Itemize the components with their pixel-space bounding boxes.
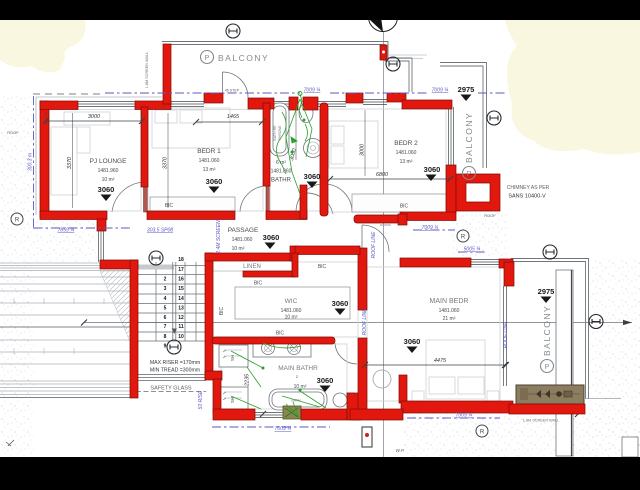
svg-text:300.3 m: 300.3 m bbox=[28, 153, 34, 171]
svg-text:5: 5 bbox=[164, 306, 167, 312]
svg-text:MAIN BEDR: MAIN BEDR bbox=[430, 298, 469, 305]
svg-text:1481.060: 1481.060 bbox=[396, 150, 417, 156]
svg-text:MAIN BATHR: MAIN BATHR bbox=[278, 365, 318, 372]
svg-text:3000: 3000 bbox=[88, 114, 101, 120]
svg-text:1481.060: 1481.060 bbox=[439, 308, 460, 314]
svg-text:ROOF: ROOF bbox=[484, 213, 496, 218]
svg-text:LINEN: LINEN bbox=[243, 264, 261, 270]
svg-text:3: 3 bbox=[164, 286, 167, 292]
svg-text:BIC: BIC bbox=[254, 281, 263, 287]
svg-text:18: 18 bbox=[178, 257, 184, 263]
svg-text:10 m²: 10 m² bbox=[232, 246, 245, 252]
svg-text:ROOF LINE: ROOF LINE bbox=[362, 308, 368, 336]
svg-text:7859 ¼: 7859 ¼ bbox=[58, 228, 75, 234]
svg-text:PASSAGE: PASSAGE bbox=[228, 227, 259, 234]
svg-text:303.5 SP08: 303.5 SP08 bbox=[147, 228, 173, 234]
svg-text:3000: 3000 bbox=[360, 143, 366, 156]
svg-text:7009 ¼: 7009 ¼ bbox=[422, 225, 439, 231]
svg-text:BIC: BIC bbox=[400, 204, 409, 210]
svg-text:P: P bbox=[545, 364, 550, 371]
svg-text:2975: 2975 bbox=[538, 287, 555, 296]
svg-text:SAFETY GLASS: SAFETY GLASS bbox=[150, 386, 191, 392]
svg-text:3060: 3060 bbox=[206, 177, 223, 186]
svg-text:2975: 2975 bbox=[458, 85, 475, 94]
svg-text:SH: SH bbox=[230, 355, 235, 361]
svg-text:P: P bbox=[205, 55, 210, 62]
svg-text:21 m²: 21 m² bbox=[443, 316, 456, 322]
svg-text:3060: 3060 bbox=[98, 185, 115, 194]
svg-text:BATHR: BATHR bbox=[271, 178, 292, 184]
svg-text:3060: 3060 bbox=[424, 165, 441, 174]
svg-text:17: 17 bbox=[178, 267, 184, 273]
svg-text:12: 12 bbox=[178, 315, 184, 321]
svg-text:1481.060: 1481.060 bbox=[199, 158, 220, 164]
svg-text:BEDR 2: BEDR 2 bbox=[394, 140, 418, 147]
svg-text:ROOF LINE: ROOF LINE bbox=[371, 231, 377, 259]
svg-text:R: R bbox=[461, 235, 466, 241]
svg-text:5005 ¼: 5005 ¼ bbox=[464, 247, 481, 253]
svg-text:WIC: WIC bbox=[285, 298, 298, 305]
svg-text:1.8M SCREEN WALL: 1.8M SCREEN WALL bbox=[145, 52, 149, 89]
svg-text:BIC: BIC bbox=[165, 203, 174, 209]
svg-text:MIN TREAD =300mm: MIN TREAD =300mm bbox=[150, 368, 200, 374]
svg-text:10 m²: 10 m² bbox=[294, 384, 307, 390]
svg-text:3060: 3060 bbox=[263, 233, 280, 242]
svg-text:7: 7 bbox=[164, 324, 167, 330]
svg-text:ROOF: ROOF bbox=[7, 130, 19, 135]
svg-text:2.4M SCREEN: 2.4M SCREEN bbox=[216, 220, 222, 255]
svg-text:3060: 3060 bbox=[404, 337, 421, 346]
svg-text:PJ LOUNGE: PJ LOUNGE bbox=[90, 158, 128, 165]
svg-text:SANS 10400-V: SANS 10400-V bbox=[508, 194, 546, 200]
svg-text:13 m²: 13 m² bbox=[203, 167, 216, 173]
svg-text:9: 9 bbox=[164, 344, 167, 350]
svg-text:BIC: BIC bbox=[219, 306, 225, 315]
svg-text:P: P bbox=[467, 171, 472, 178]
svg-text:1.8M SCREEN WALL: 1.8M SCREEN WALL bbox=[523, 419, 560, 423]
svg-text:CHIMNEY AS PER: CHIMNEY AS PER bbox=[507, 185, 550, 191]
svg-text:6800: 6800 bbox=[376, 172, 389, 178]
svg-text:3060: 3060 bbox=[304, 172, 321, 181]
svg-text:50 RISE: 50 RISE bbox=[198, 390, 204, 409]
svg-text:14: 14 bbox=[178, 296, 184, 302]
svg-text:BALCONY: BALCONY bbox=[464, 112, 474, 163]
svg-text:45 STEP: 45 STEP bbox=[225, 89, 240, 93]
svg-text:THRONE: THRONE bbox=[278, 125, 282, 141]
svg-text:16: 16 bbox=[178, 277, 184, 283]
svg-text:10: 10 bbox=[178, 334, 184, 340]
svg-text:7009 ¼: 7009 ¼ bbox=[275, 426, 292, 432]
svg-text:BALCONY: BALCONY bbox=[218, 53, 269, 63]
svg-text:BATH RE: BATH RE bbox=[273, 125, 277, 141]
svg-text:3370: 3370 bbox=[163, 156, 169, 169]
svg-text:7009 ¼: 7009 ¼ bbox=[456, 413, 473, 419]
svg-text:2: 2 bbox=[164, 277, 167, 283]
svg-text:SH: SH bbox=[230, 397, 235, 403]
svg-text:10 m²: 10 m² bbox=[102, 177, 115, 183]
svg-text:1481.960: 1481.960 bbox=[98, 168, 119, 174]
svg-text:6: 6 bbox=[164, 315, 167, 321]
svg-text:BIC: BIC bbox=[318, 264, 327, 270]
svg-text:1465: 1465 bbox=[227, 114, 240, 120]
svg-text:13 m²: 13 m² bbox=[400, 159, 413, 165]
svg-text:11: 11 bbox=[178, 324, 184, 330]
svg-text:BATH: BATH bbox=[291, 399, 301, 403]
svg-text:13: 13 bbox=[178, 306, 184, 312]
svg-text:10 m²: 10 m² bbox=[285, 315, 298, 321]
svg-text:1481.060: 1481.060 bbox=[281, 308, 302, 314]
svg-text:3370: 3370 bbox=[67, 156, 73, 169]
svg-text:MAX RISER =170mm: MAX RISER =170mm bbox=[150, 360, 200, 366]
svg-text:R: R bbox=[480, 430, 485, 436]
svg-text:W.P.: W.P. bbox=[395, 448, 404, 453]
svg-text:4475: 4475 bbox=[434, 358, 447, 364]
svg-text:BALCONY: BALCONY bbox=[542, 305, 552, 356]
svg-text:BIC: BIC bbox=[276, 331, 285, 337]
svg-text:7009 ¼: 7009 ¼ bbox=[432, 88, 449, 94]
svg-text:BEDR 1: BEDR 1 bbox=[197, 148, 221, 155]
svg-text:7009 ¼: 7009 ¼ bbox=[304, 88, 321, 94]
svg-text:4: 4 bbox=[164, 296, 167, 302]
svg-text:3060: 3060 bbox=[317, 376, 334, 385]
svg-text:1481.060: 1481.060 bbox=[232, 237, 253, 243]
svg-text:2235: 2235 bbox=[245, 373, 251, 387]
svg-text:6 m²: 6 m² bbox=[276, 160, 286, 166]
svg-text:R: R bbox=[15, 218, 20, 224]
svg-text:ROOF LINE: ROOF LINE bbox=[503, 321, 509, 349]
svg-text:3060: 3060 bbox=[332, 299, 349, 308]
svg-text:1481.060: 1481.060 bbox=[271, 169, 292, 175]
svg-text:15: 15 bbox=[178, 286, 184, 292]
svg-text:8: 8 bbox=[164, 334, 167, 340]
